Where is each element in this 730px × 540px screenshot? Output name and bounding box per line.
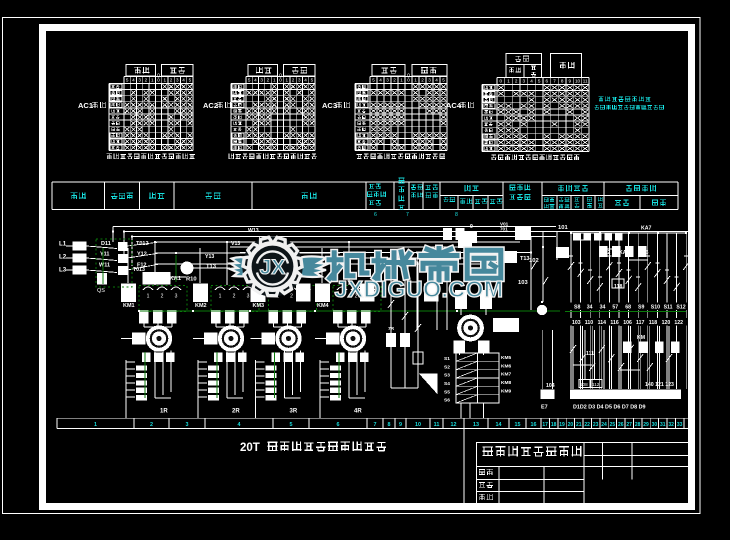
svg-text:32: 32	[668, 422, 674, 428]
svg-text:140 121 123: 140 121 123	[645, 382, 674, 388]
svg-text:28: 28	[635, 422, 641, 428]
svg-text:29: 29	[643, 422, 649, 428]
svg-text:KM3: KM3	[253, 303, 265, 309]
svg-text:7: 7	[374, 422, 377, 428]
svg-text:4: 4	[182, 78, 185, 83]
svg-text:3: 3	[523, 79, 526, 84]
svg-text:57: 57	[612, 305, 618, 311]
svg-text:T13: T13	[206, 264, 217, 270]
svg-text:30: 30	[652, 422, 658, 428]
svg-text:0: 0	[157, 78, 160, 83]
svg-text:S12: S12	[676, 305, 685, 311]
svg-text:7: 7	[406, 212, 409, 218]
svg-text:D1D2 D3 D4 D5 D6 D7 D8 D9: D1D2 D3 D4 D5 D6 D7 D8 D9	[573, 405, 646, 411]
svg-text:AC1: AC1	[78, 101, 93, 110]
svg-text:2: 2	[515, 79, 518, 84]
svg-text:0: 0	[500, 79, 503, 84]
svg-text:1: 1	[273, 78, 276, 83]
svg-text:4: 4	[530, 79, 533, 84]
svg-text:E7: E7	[541, 405, 548, 411]
svg-text:6: 6	[337, 422, 340, 428]
svg-text:KM: KM	[637, 335, 645, 341]
svg-text:Y11: Y11	[100, 252, 109, 258]
svg-text:9: 9	[470, 224, 473, 230]
svg-text:1: 1	[285, 78, 288, 83]
svg-text:KM6: KM6	[501, 363, 511, 369]
svg-text:106: 106	[623, 320, 632, 326]
svg-text:10: 10	[415, 422, 421, 428]
svg-text:102: 102	[529, 258, 539, 264]
svg-text:L1: L1	[59, 241, 67, 248]
svg-text:S4: S4	[444, 381, 450, 387]
svg-text:3: 3	[175, 294, 178, 300]
svg-text:AC3: AC3	[322, 101, 337, 110]
svg-text:14: 14	[496, 422, 502, 428]
svg-text:22: 22	[584, 422, 590, 428]
svg-text:1: 1	[151, 78, 154, 83]
svg-text:T13: T13	[520, 256, 529, 262]
svg-text:JXDIGUO.COM: JXDIGUO.COM	[334, 276, 503, 302]
svg-text:6: 6	[374, 212, 377, 218]
svg-text:1: 1	[147, 294, 150, 300]
svg-text:1: 1	[400, 78, 403, 83]
svg-text:1: 1	[219, 294, 222, 300]
svg-text:KM9: KM9	[501, 388, 511, 394]
svg-text:S6: S6	[444, 398, 450, 404]
svg-text:108: 108	[580, 382, 588, 387]
svg-text:33: 33	[677, 422, 683, 428]
svg-text:13: 13	[473, 422, 479, 428]
svg-text:1: 1	[507, 79, 510, 84]
svg-text:AC2: AC2	[203, 101, 218, 110]
svg-text:3R: 3R	[290, 409, 298, 415]
svg-text:4: 4	[379, 78, 382, 83]
svg-text:5: 5	[126, 78, 129, 83]
svg-text:118: 118	[649, 320, 657, 326]
svg-text:3: 3	[186, 422, 189, 428]
svg-text:117: 117	[636, 320, 644, 326]
svg-text:111: 111	[586, 351, 594, 357]
svg-text:27: 27	[626, 422, 632, 428]
svg-text:S1: S1	[444, 356, 450, 362]
svg-text:1: 1	[94, 422, 97, 428]
svg-text:KM2: KM2	[195, 303, 207, 309]
svg-text:5: 5	[372, 78, 375, 83]
svg-text:W13: W13	[248, 228, 259, 234]
svg-text:QS: QS	[97, 288, 105, 294]
svg-text:5: 5	[248, 78, 251, 83]
svg-text:3: 3	[260, 78, 263, 83]
svg-text:110: 110	[585, 320, 593, 326]
svg-text:3: 3	[298, 78, 301, 83]
svg-text:18: 18	[551, 422, 557, 428]
svg-text:S3: S3	[444, 373, 450, 379]
svg-text:1: 1	[163, 78, 166, 83]
svg-text:26: 26	[618, 422, 624, 428]
svg-text:L3: L3	[59, 267, 67, 274]
svg-text:S10: S10	[651, 305, 660, 311]
svg-text:24: 24	[601, 422, 607, 428]
svg-text:103: 103	[518, 280, 528, 286]
svg-text:3: 3	[247, 294, 250, 300]
svg-text:8: 8	[388, 422, 391, 428]
svg-text:4: 4	[254, 78, 257, 83]
svg-text:15: 15	[515, 422, 521, 428]
svg-text:6: 6	[546, 79, 549, 84]
svg-text:S9: S9	[638, 305, 644, 311]
svg-text:KM1: KM1	[123, 303, 135, 309]
svg-text:JX: JX	[260, 256, 286, 279]
svg-text:KM4: KM4	[317, 303, 330, 309]
svg-text:103: 103	[572, 320, 581, 326]
svg-text:118: 118	[614, 284, 622, 290]
svg-text:122: 122	[674, 320, 683, 326]
svg-text:104: 104	[546, 383, 555, 389]
svg-text:2: 2	[393, 78, 396, 83]
svg-text:S11: S11	[664, 305, 673, 311]
svg-text:5: 5	[538, 79, 541, 84]
svg-text:T013: T013	[133, 267, 145, 273]
svg-text:L2: L2	[59, 254, 67, 261]
svg-text:4: 4	[435, 78, 438, 83]
svg-text:5: 5	[290, 422, 293, 428]
svg-text:7R: 7R	[388, 326, 395, 332]
svg-text:S5: S5	[444, 389, 450, 395]
svg-text:701: 701	[500, 227, 508, 232]
svg-text:1R: 1R	[160, 409, 168, 415]
svg-text:17: 17	[542, 422, 548, 428]
svg-text:20: 20	[568, 422, 574, 428]
svg-text:8: 8	[455, 212, 458, 218]
svg-text:25: 25	[610, 422, 616, 428]
svg-text:68: 68	[625, 305, 631, 311]
svg-text:KM8: KM8	[501, 380, 511, 386]
svg-text:120: 120	[662, 320, 671, 326]
svg-text:21: 21	[576, 422, 582, 428]
svg-text:4: 4	[238, 422, 241, 428]
svg-text:2: 2	[421, 78, 424, 83]
svg-text:V13: V13	[231, 241, 240, 247]
svg-text:KM5: KM5	[501, 355, 511, 361]
svg-text:4R: 4R	[354, 409, 362, 415]
svg-text:2: 2	[170, 78, 173, 83]
svg-text:10: 10	[575, 79, 581, 84]
svg-text:3: 3	[176, 78, 179, 83]
svg-text:5: 5	[189, 78, 192, 83]
svg-text:5: 5	[442, 78, 445, 83]
svg-text:9: 9	[569, 79, 572, 84]
svg-text:3: 3	[386, 78, 389, 83]
svg-text:7: 7	[553, 79, 556, 84]
svg-text:11: 11	[434, 422, 440, 428]
svg-text:1: 1	[414, 78, 417, 83]
svg-text:3: 3	[428, 78, 431, 83]
svg-text:3: 3	[138, 78, 141, 83]
svg-text:R10: R10	[186, 277, 197, 283]
svg-text:4: 4	[304, 78, 307, 83]
svg-text:9: 9	[399, 422, 402, 428]
svg-text:12: 12	[451, 422, 457, 428]
svg-text:2: 2	[161, 294, 164, 300]
svg-text:KA7: KA7	[641, 226, 651, 232]
svg-text:34: 34	[600, 305, 606, 311]
svg-text:23: 23	[593, 422, 599, 428]
svg-text:S8: S8	[574, 305, 580, 311]
svg-text:11: 11	[583, 79, 588, 84]
svg-text:S2: S2	[444, 364, 450, 370]
svg-text:2: 2	[267, 78, 270, 83]
svg-text:16: 16	[531, 422, 537, 428]
svg-text:AC4: AC4	[446, 101, 462, 110]
svg-text:D11: D11	[101, 241, 111, 247]
svg-text:116: 116	[610, 320, 618, 326]
svg-text:34: 34	[587, 305, 593, 311]
svg-text:114: 114	[598, 320, 606, 326]
svg-text:2: 2	[290, 294, 293, 300]
svg-text:19: 19	[559, 422, 565, 428]
svg-text:5: 5	[311, 78, 314, 83]
svg-text:0: 0	[407, 78, 410, 83]
svg-text:0: 0	[279, 78, 282, 83]
svg-text:8: 8	[561, 79, 564, 84]
svg-text:KM7: KM7	[501, 372, 511, 378]
svg-text:2: 2	[233, 294, 236, 300]
svg-text:4: 4	[132, 78, 135, 83]
svg-text:20T: 20T	[240, 442, 260, 454]
svg-text:W11: W11	[99, 263, 110, 269]
svg-text:2R: 2R	[232, 409, 240, 415]
svg-text:2: 2	[145, 78, 148, 83]
svg-text:2: 2	[292, 78, 295, 83]
svg-text:31: 31	[660, 422, 666, 428]
svg-text:112: 112	[592, 382, 600, 387]
svg-text:2: 2	[150, 422, 153, 428]
svg-text:Y13: Y13	[205, 254, 214, 260]
svg-text:101: 101	[558, 225, 568, 231]
